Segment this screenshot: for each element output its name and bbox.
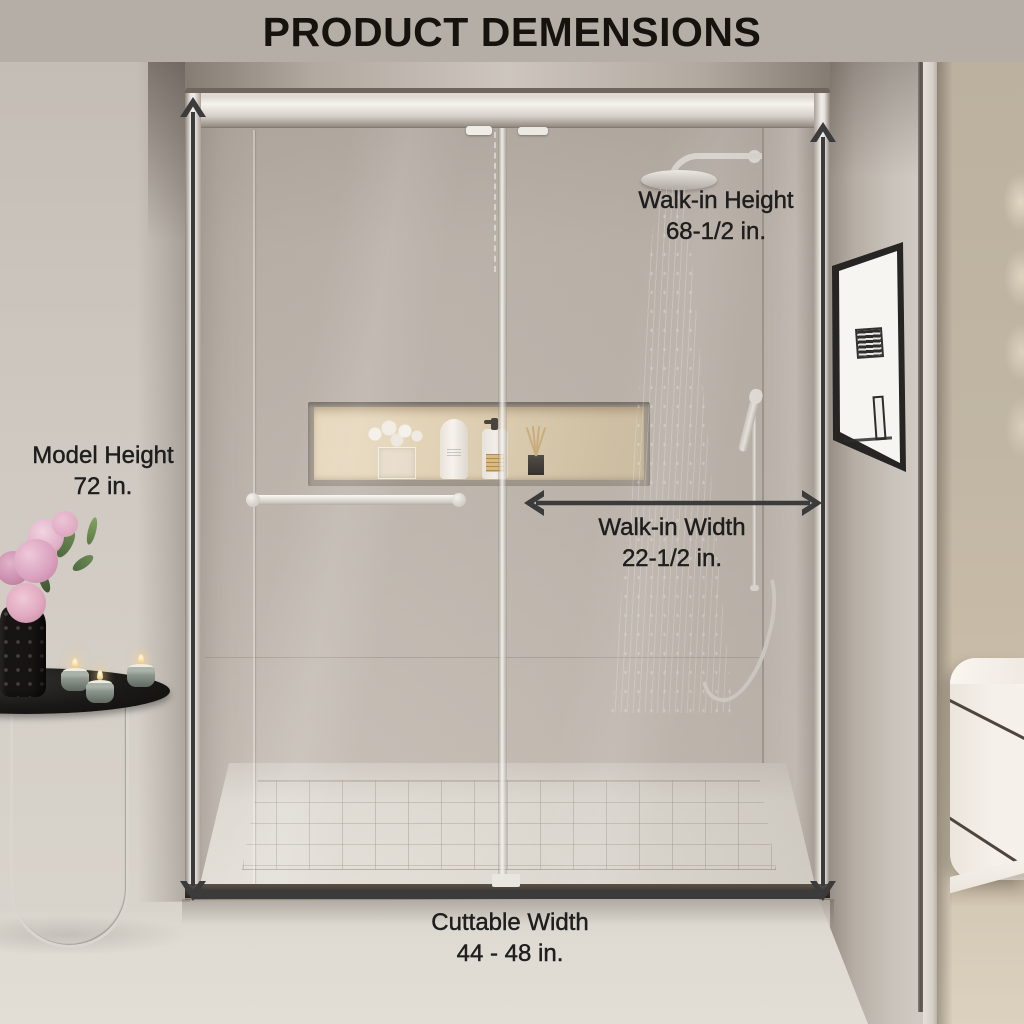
model-height-text: Model Height xyxy=(0,440,206,471)
product-dimensions-image: PRODUCT DEMENSIONS xyxy=(0,0,1024,1024)
walk-in-width-value: 22-1/2 in. xyxy=(542,543,802,574)
walk-in-width-text: Walk-in Width xyxy=(542,512,802,543)
model-height-label: Model Height 72 in. xyxy=(0,440,206,502)
cuttable-width-value: 44 - 48 in. xyxy=(380,938,640,969)
walk-in-height-label: Walk-in Height 68-1/2 in. xyxy=(586,185,846,247)
model-height-value: 72 in. xyxy=(0,471,206,502)
walk-in-height-text: Walk-in Height xyxy=(586,185,846,216)
cuttable-width-label: Cuttable Width 44 - 48 in. xyxy=(380,907,640,969)
walk-in-width-label: Walk-in Width 22-1/2 in. xyxy=(542,512,802,574)
dimension-arrows xyxy=(0,0,1024,1024)
walk-in-height-value: 68-1/2 in. xyxy=(586,216,846,247)
cuttable-width-text: Cuttable Width xyxy=(380,907,640,938)
